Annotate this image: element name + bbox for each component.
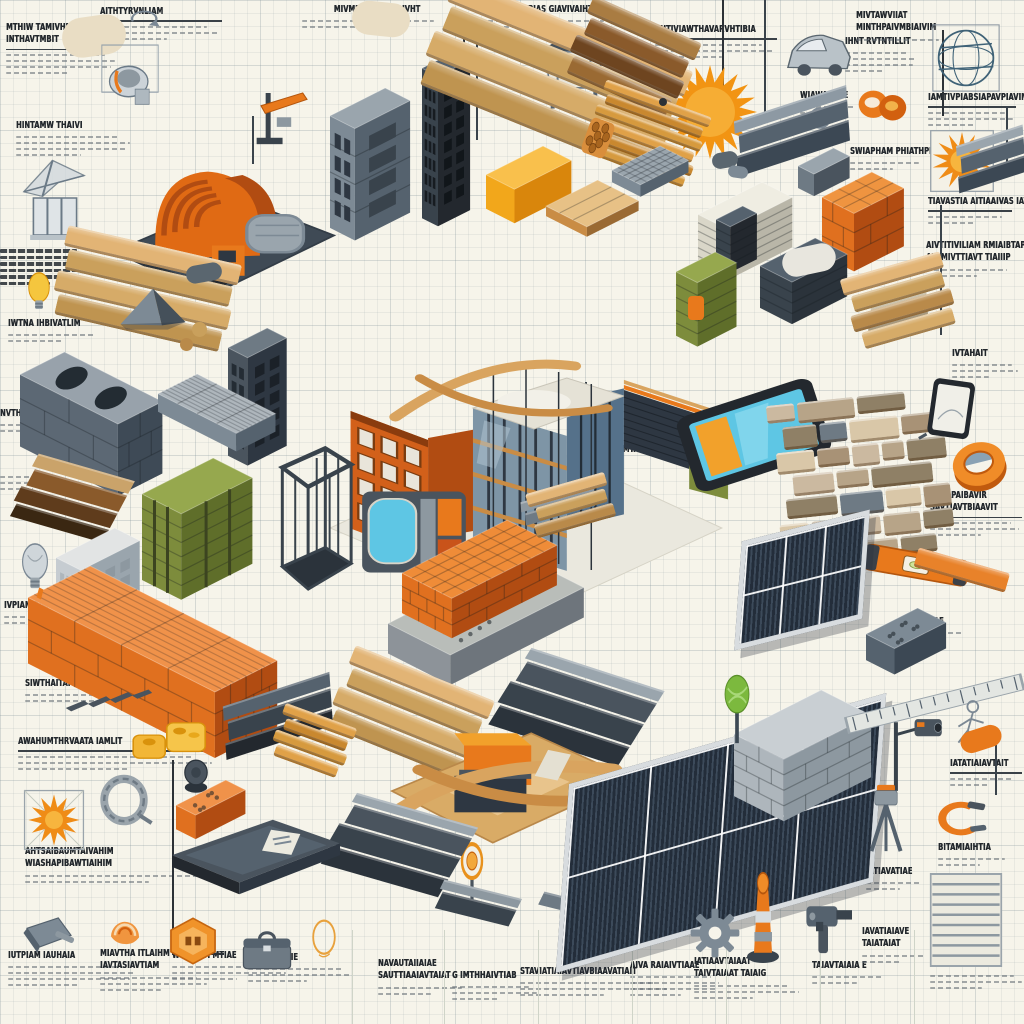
annotation-body-line	[172, 978, 237, 980]
annotation-body-line	[952, 370, 1018, 372]
waffle-textured-slab	[612, 146, 689, 197]
concrete-frame-building	[330, 88, 410, 241]
tree-sketch	[714, 674, 760, 746]
annotation-body-line	[928, 112, 1005, 114]
annotation-heading: HINTAMW THAIVI	[16, 120, 99, 132]
annotation-body-line	[694, 991, 799, 993]
annotation-body-line	[930, 975, 1014, 977]
theodolite-tripod	[858, 782, 914, 854]
slate-stack-small	[430, 880, 522, 929]
pile-plank	[882, 440, 905, 461]
annotation-heading: AIVTITIVILIAM RMIAIBTAPAVI	[926, 240, 990, 252]
document-slab	[172, 810, 340, 908]
annotation-body-line	[950, 784, 990, 786]
pile-plank	[923, 482, 952, 508]
annotation-body-line	[248, 980, 307, 982]
callout-line	[538, 930, 539, 1024]
annotation-heading: TIAVASTIA AITIAAIVAS IAVTIAIT	[928, 196, 987, 208]
pile-plank	[819, 421, 848, 444]
annotation-block: IATIAVATIAE	[866, 866, 928, 894]
annotation-body-line	[25, 881, 149, 883]
annotation-body-line	[850, 168, 893, 170]
annotation-block: BITAMIAIHTIA	[938, 842, 1014, 870]
annotation-body-line	[950, 778, 1013, 780]
concrete-frame-building-gfx	[330, 88, 410, 241]
annotation-heading: SAUTTIAAIAVTAIAT	[378, 970, 445, 982]
traffic-bollard	[738, 870, 788, 964]
annotation-body-line	[930, 987, 982, 989]
circd-gfx	[306, 916, 342, 962]
stone-blob-2	[727, 165, 748, 180]
annotation-body-line	[862, 961, 902, 963]
bollard-gfx	[738, 870, 788, 964]
annotation-body-line	[8, 984, 80, 986]
toolbox-sketch	[236, 920, 298, 978]
annotation-heading: IVTAHAIT	[952, 348, 1000, 360]
construction-materials-collage: MTHIW TAMIVHMINTHAVTMBITAITHTYRVNLIAMHIN…	[0, 0, 1024, 1024]
sunburst-sketch-box	[22, 788, 86, 852]
pile-plank	[817, 446, 851, 468]
bulbG-gfx	[12, 538, 58, 604]
annotation-body-line	[866, 882, 921, 884]
pile-plank	[856, 392, 906, 415]
annotation-body-line	[812, 976, 884, 978]
sunl-gfx	[22, 788, 86, 852]
annotation-body-line	[16, 142, 130, 144]
curved-arrow-icon	[126, 4, 164, 32]
pile-plank	[786, 494, 839, 519]
annotation-heading: IAVATIAIAVE	[862, 926, 912, 938]
circle-doodle-orange	[306, 916, 342, 962]
gadget-sketch	[98, 42, 162, 118]
annotation-heading: MIVTAWVIIAT	[856, 10, 961, 22]
callout-line	[914, 930, 915, 1024]
annotation-body-line	[378, 987, 462, 989]
drill-sketch	[798, 886, 858, 964]
hexnut-gfx	[164, 914, 222, 968]
log-end	[192, 322, 207, 337]
tree-gfx	[714, 674, 760, 746]
coil-gfx	[94, 768, 154, 832]
log-end-2	[180, 338, 193, 351]
orange-patch	[688, 296, 704, 320]
van-sketch	[782, 20, 856, 84]
annotation-body-line	[520, 994, 604, 996]
annotation-heading: SWIAPHAM PHIATHPIN	[850, 146, 905, 158]
annotation-body-line	[938, 864, 980, 866]
waffle-textured-slab-gfx	[612, 146, 689, 197]
annotation-body-line	[378, 993, 431, 995]
blinds-sketch	[924, 870, 1008, 970]
arrow-gfx	[126, 4, 164, 32]
shell-gfx	[100, 904, 150, 958]
annotation-body-line	[862, 955, 925, 957]
annotation-heading: NAVAUTAIIAIAE	[378, 958, 445, 970]
gear-gfx	[686, 904, 744, 962]
annotation-body-line	[812, 982, 857, 984]
callout-line	[444, 930, 445, 1024]
cage-gfx	[272, 442, 358, 602]
annotation-body-line	[452, 998, 500, 1000]
callout-line	[764, 0, 766, 118]
orange-clamp-tool	[928, 798, 990, 844]
annotation-body-line	[16, 136, 120, 138]
pile-plank	[776, 449, 816, 475]
annotation-heading: AIVA RAIAIVTIAAE	[630, 960, 694, 972]
annotation-body-line	[694, 985, 789, 987]
concrete-block-dotted-gfx	[866, 608, 946, 675]
pile-plank	[852, 442, 881, 467]
annotation-body-line	[8, 340, 63, 342]
annotation-block: IATATIAIAVTAIT	[950, 758, 1022, 790]
pile-plank	[849, 415, 900, 443]
annotation-body-line	[928, 124, 976, 126]
steel-cage-frame	[272, 442, 358, 602]
pile-plank	[836, 468, 870, 489]
tripod-gfx	[858, 782, 914, 854]
annotation-rule	[950, 772, 1022, 774]
annotation-heading: G IMTHHAIVTIAB	[452, 970, 514, 982]
toolbox-gfx	[236, 920, 298, 978]
dustpan-sketch	[20, 904, 78, 962]
annotation-body-line	[850, 162, 919, 164]
concrete-block-dotted	[866, 608, 946, 675]
hex-nut-icon	[164, 914, 222, 968]
keyboard-textured-slab	[158, 374, 276, 451]
pyramid-gfx	[116, 280, 190, 334]
safety-goggles-icon	[856, 84, 910, 128]
pile-plank	[766, 403, 796, 424]
pile-plank	[782, 424, 818, 450]
brick-slab	[402, 520, 557, 638]
annotation-body-line	[8, 334, 96, 336]
annotation-body-line	[952, 364, 1012, 366]
annotation-heading: WIASHAPIBAWTIAIHIM	[25, 858, 183, 870]
annotation-heading: TAIATAIAT	[862, 938, 912, 950]
callout-line	[352, 930, 353, 1024]
annotation-heading: TAIVTAIAAT TAIAIG	[694, 968, 770, 980]
globe-gfx	[930, 22, 1002, 94]
blinds-gfx	[924, 870, 1008, 970]
annotation-body-line	[6, 66, 111, 68]
annotation-body-line	[930, 981, 1022, 983]
keyboard-textured-slab-gfx	[158, 374, 276, 451]
annotation-body-line	[866, 888, 900, 890]
annotation-body-line	[694, 997, 753, 999]
annotation-body-line	[6, 72, 68, 74]
globe-sketch	[930, 22, 1002, 94]
annotation-body-line	[928, 118, 1013, 120]
pv-module	[734, 509, 870, 650]
mask-gfx	[856, 84, 910, 128]
van-gfx	[782, 20, 856, 84]
dustpan-gfx	[20, 904, 78, 962]
annotation-body-line	[630, 994, 681, 996]
annotation-body-line	[938, 858, 1005, 860]
pile-plank	[885, 485, 922, 509]
masking-tape-blob-2	[350, 0, 411, 39]
annotation-body-line	[928, 222, 974, 224]
solar-panel-small	[734, 509, 870, 650]
drill-gfx	[798, 886, 858, 964]
lightbulb-grey	[12, 538, 58, 604]
annotation-body-line	[100, 989, 161, 991]
orange-shell-icon	[100, 904, 150, 958]
stone-pyramid	[116, 280, 190, 334]
brick-slab-gfx	[402, 520, 557, 638]
wire-coil	[94, 768, 154, 832]
pole-dot	[659, 98, 667, 106]
docslab-gfx	[172, 810, 340, 908]
annotation-body-line	[856, 39, 939, 41]
annotation-body-line	[452, 986, 529, 988]
gear-sketch	[686, 904, 744, 962]
clamp-gfx	[928, 798, 990, 844]
annotation-block: SWIAPHAM PHIATHPIN	[850, 146, 928, 174]
gadget-gfx	[98, 42, 162, 118]
pile-plank	[792, 471, 835, 496]
